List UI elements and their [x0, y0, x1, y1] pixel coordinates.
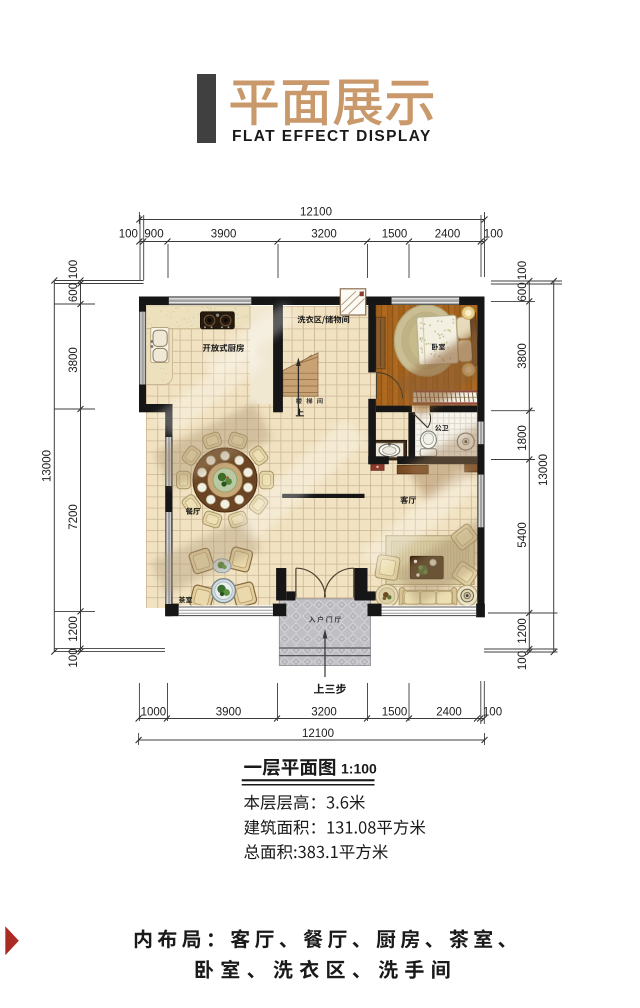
svg-text:2400: 2400	[435, 229, 461, 241]
svg-text:3200: 3200	[311, 229, 337, 241]
svg-text:3200: 3200	[311, 707, 337, 719]
svg-text:13000: 13000	[538, 454, 550, 486]
svg-text:100: 100	[517, 261, 529, 280]
svg-text:100: 100	[68, 648, 80, 667]
svg-text:13000: 13000	[42, 450, 54, 482]
svg-text:1800: 1800	[517, 425, 529, 451]
svg-text:100: 100	[119, 229, 138, 241]
svg-text:1200: 1200	[517, 618, 529, 644]
svg-text:1500: 1500	[382, 707, 408, 719]
svg-text:12100: 12100	[302, 728, 334, 740]
svg-text:3800: 3800	[68, 347, 80, 373]
svg-text:7200: 7200	[68, 504, 80, 530]
svg-text:100: 100	[483, 707, 502, 719]
svg-text:3800: 3800	[517, 343, 529, 369]
svg-text:1000: 1000	[141, 707, 167, 719]
svg-text:900: 900	[144, 229, 163, 241]
svg-text:100: 100	[484, 229, 503, 241]
svg-text:2400: 2400	[436, 707, 462, 719]
svg-text:FLAT EFFECT DISPLAY: FLAT EFFECT DISPLAY	[232, 128, 432, 145]
svg-text:100: 100	[517, 651, 529, 670]
svg-text:100: 100	[68, 260, 80, 279]
svg-text:1200: 1200	[68, 616, 80, 642]
svg-text:1:100: 1:100	[341, 761, 377, 777]
svg-text:3900: 3900	[216, 707, 242, 719]
svg-text:1500: 1500	[382, 229, 408, 241]
svg-text:600: 600	[517, 282, 529, 301]
svg-text:3900: 3900	[211, 229, 237, 241]
svg-text:600: 600	[68, 283, 80, 302]
svg-text:5400: 5400	[517, 522, 529, 548]
svg-text:12100: 12100	[300, 207, 332, 219]
